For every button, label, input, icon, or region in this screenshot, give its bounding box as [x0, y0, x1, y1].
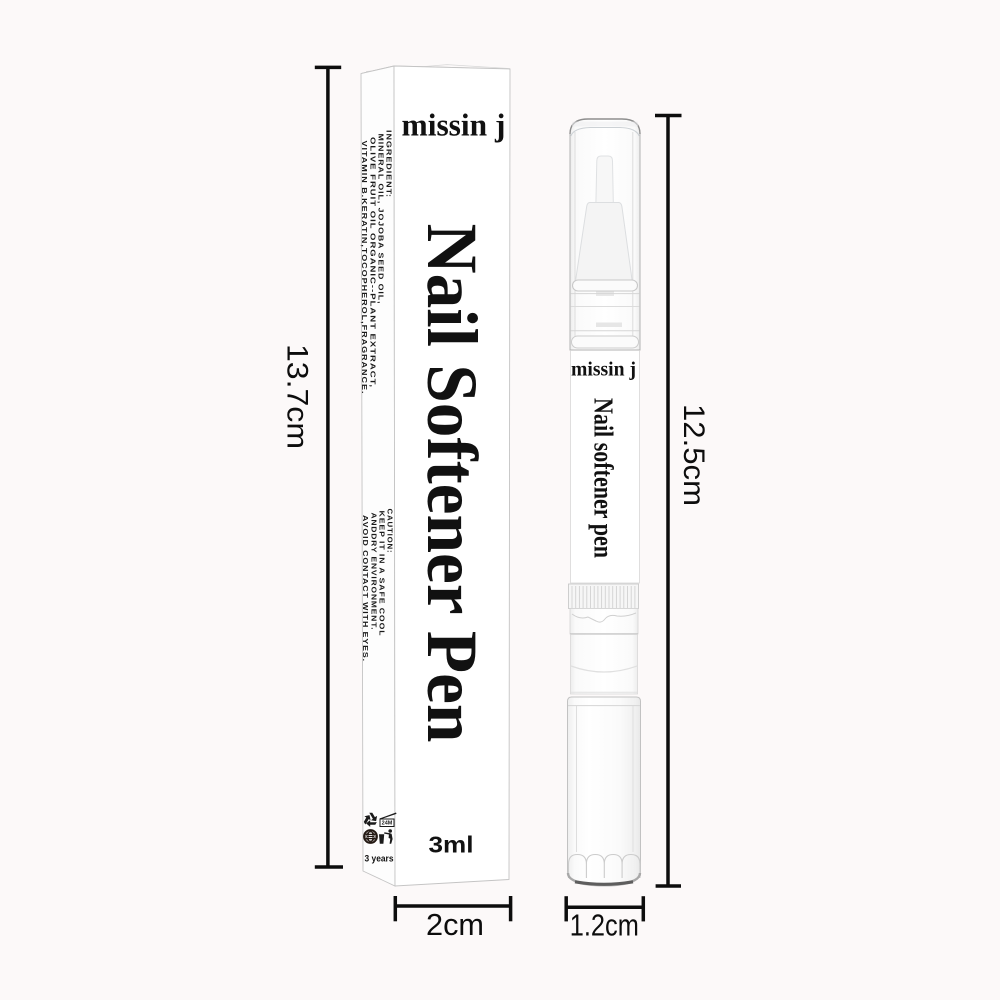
- svg-text:AVOID CONTACT WITH EYES.: AVOID CONTACT WITH EYES.: [361, 515, 370, 662]
- svg-text:1.2cm: 1.2cm: [570, 908, 639, 943]
- svg-text:3 years: 3 years: [365, 854, 394, 865]
- svg-text:VITAMIN B.KERATIN,TOCOPHEROL,F: VITAMIN B.KERATIN,TOCOPHEROL,FRAGRANCE.: [360, 141, 369, 395]
- svg-text:Nail Softener Pen: Nail Softener Pen: [412, 224, 492, 743]
- svg-text:missin j: missin j: [402, 107, 506, 143]
- svg-text:12.5cm: 12.5cm: [677, 404, 710, 506]
- svg-text:13.7cm: 13.7cm: [281, 344, 314, 449]
- svg-text:24M: 24M: [382, 821, 393, 827]
- svg-text:missin j: missin j: [571, 359, 636, 381]
- svg-text:2cm: 2cm: [426, 907, 484, 942]
- svg-text:Nail softener pen: Nail softener pen: [589, 398, 619, 558]
- svg-text:3ml: 3ml: [429, 832, 474, 858]
